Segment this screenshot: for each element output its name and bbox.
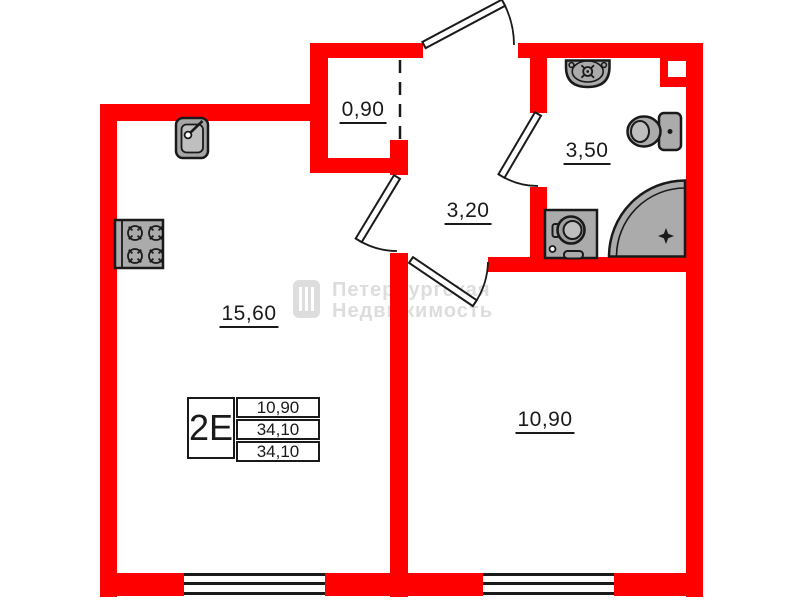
kitchen-sink-icon [176,118,208,158]
room-label-bathroom: 3,50 [564,139,611,163]
wardrobe-area-value: 0,90 [340,98,387,124]
toilet-icon [628,113,682,150]
floor-plan: Петербургская Недвижимость [0,0,800,600]
shower-tray-icon [609,181,685,257]
stove-icon [115,220,163,268]
bedroom-area-value: 10,90 [515,408,574,434]
bathroom-door [498,112,541,186]
kitchen-door [356,175,400,251]
bedroom-door [409,257,488,306]
stamp-living-area: 10,90 [236,397,320,418]
kitchen-living-area-value: 15,60 [219,302,278,328]
hallway-area-value: 3,20 [445,199,492,225]
doors-and-fixtures-layer [0,0,800,600]
stamp-area: 34,10 [236,419,320,440]
room-label-wardrobe: 0,90 [340,98,387,122]
bathroom-sink-icon [566,61,610,88]
room-label-hallway: 3,20 [445,199,492,223]
room-label-bedroom: 10,90 [515,408,574,432]
unit-type-cell: 2Е [187,397,235,459]
washing-machine-icon [545,210,597,259]
area-stamp-table: 2Е 10,90 34,10 34,10 [187,397,320,463]
stamp-total-area: 34,10 [236,441,320,462]
area-stamp-rows: 10,90 34,10 34,10 [236,397,320,463]
bathroom-area-value: 3,50 [564,139,611,165]
entrance-door [422,0,514,48]
room-label-kitchen-living: 15,60 [219,302,278,326]
